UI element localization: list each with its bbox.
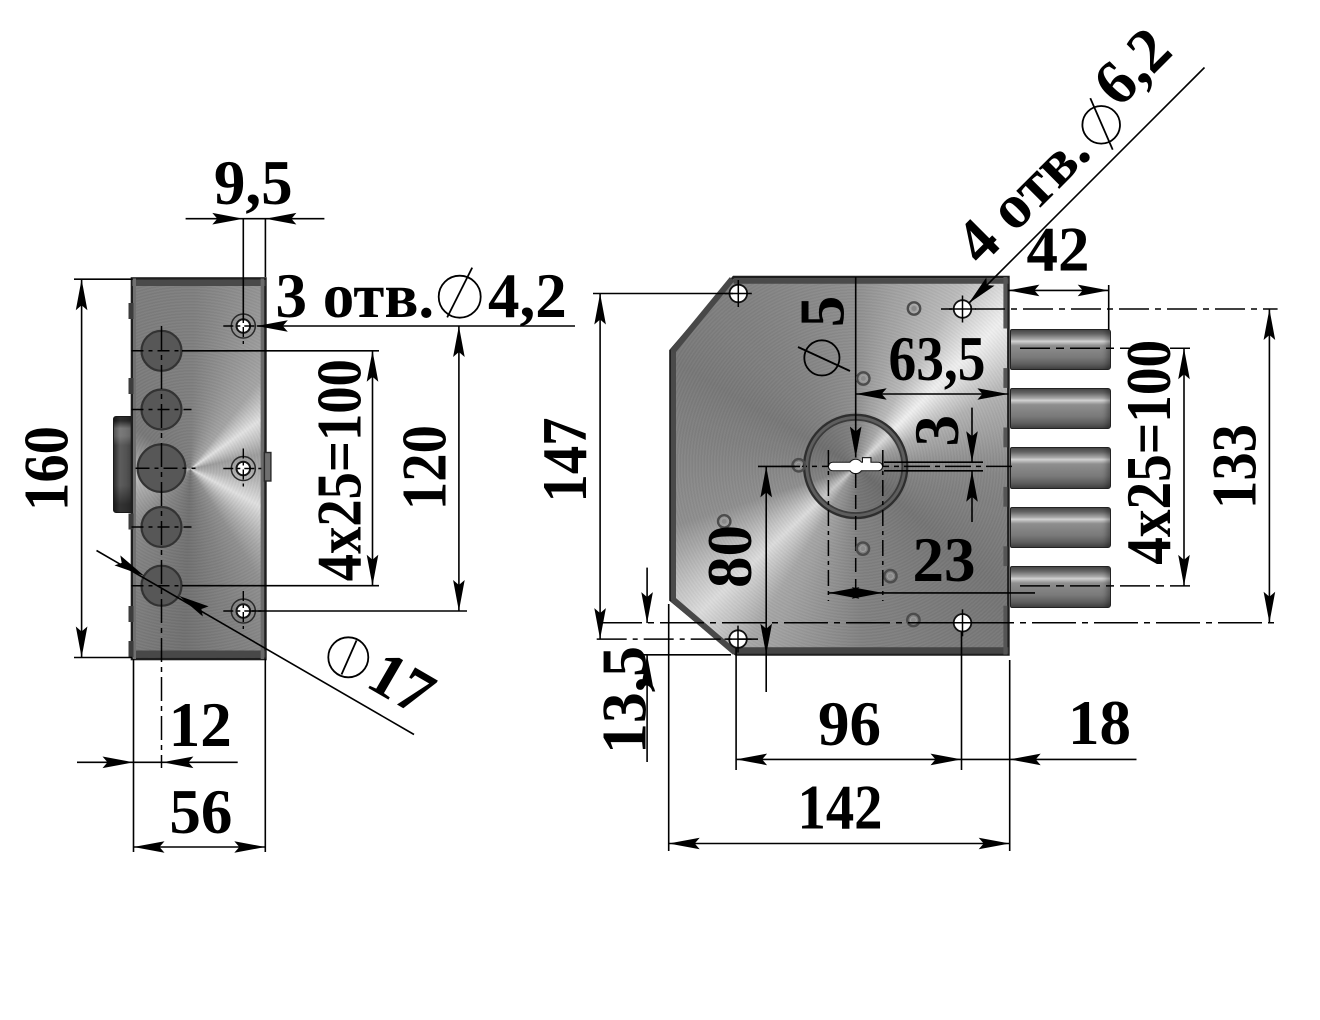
svg-text:3 отв.: 3 отв. bbox=[276, 261, 435, 331]
svg-text:147: 147 bbox=[530, 418, 600, 503]
svg-text:9,5: 9,5 bbox=[214, 148, 293, 218]
svg-text:133: 133 bbox=[1200, 424, 1270, 509]
svg-text:96: 96 bbox=[818, 689, 881, 759]
svg-text:120: 120 bbox=[390, 425, 460, 510]
svg-text:80: 80 bbox=[695, 525, 765, 588]
svg-text:56: 56 bbox=[169, 777, 232, 847]
svg-text:3: 3 bbox=[902, 415, 972, 447]
svg-text:13,5: 13,5 bbox=[590, 646, 660, 754]
svg-text:12: 12 bbox=[169, 690, 232, 760]
svg-text:160: 160 bbox=[12, 426, 82, 511]
svg-text:17: 17 bbox=[357, 637, 447, 729]
svg-text:4x25=100: 4x25=100 bbox=[305, 359, 375, 581]
svg-text:18: 18 bbox=[1068, 688, 1131, 758]
svg-text:142: 142 bbox=[798, 773, 883, 843]
svg-text:4,2: 4,2 bbox=[488, 261, 567, 331]
svg-text:5: 5 bbox=[788, 296, 858, 328]
svg-text:63,5: 63,5 bbox=[889, 324, 986, 394]
svg-text:4x25=100: 4x25=100 bbox=[1114, 340, 1184, 565]
svg-text:23: 23 bbox=[913, 525, 976, 595]
